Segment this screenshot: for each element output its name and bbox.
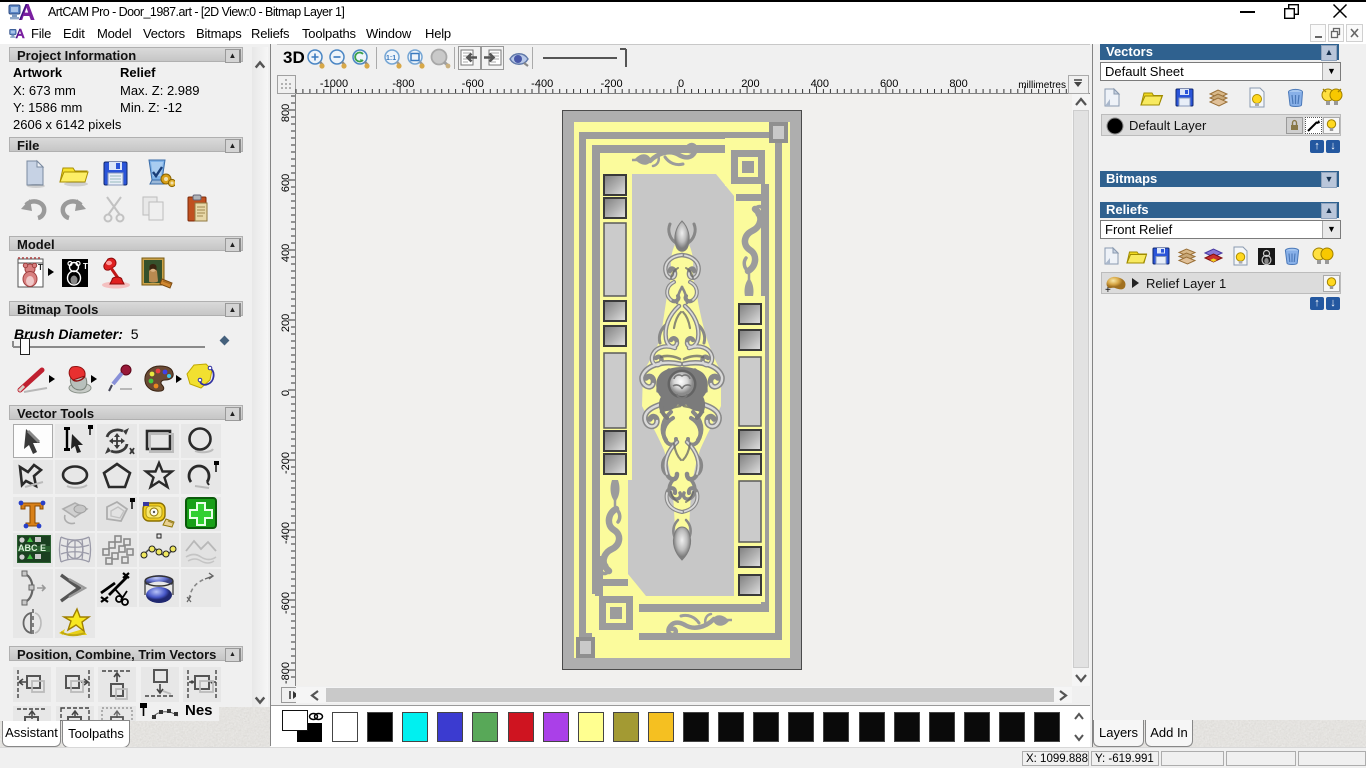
svg-text:-600: -600 — [280, 592, 292, 614]
svg-text:-600: -600 — [462, 78, 484, 90]
svg-text:+: + — [1105, 285, 1111, 294]
svg-text:600: 600 — [280, 174, 292, 192]
svg-text:800: 800 — [949, 78, 967, 90]
svg-text:T: T — [83, 262, 88, 271]
svg-text:-800: -800 — [280, 662, 292, 684]
svg-text:200: 200 — [280, 314, 292, 332]
svg-text:-800: -800 — [392, 78, 414, 90]
svg-text:T: T — [38, 263, 43, 272]
svg-text:200: 200 — [741, 78, 759, 90]
svg-text:800: 800 — [280, 104, 292, 122]
svg-text:600: 600 — [880, 78, 898, 90]
svg-text:-1000: -1000 — [320, 78, 348, 90]
svg-text:1:1: 1:1 — [386, 55, 396, 62]
svg-text:-200: -200 — [601, 78, 623, 90]
svg-text:400: 400 — [811, 78, 829, 90]
svg-text:400: 400 — [280, 244, 292, 262]
svg-text:0: 0 — [280, 390, 292, 396]
svg-text:-200: -200 — [280, 452, 292, 474]
svg-text:-400: -400 — [280, 522, 292, 544]
svg-text:millimetres: millimetres — [1018, 80, 1066, 91]
svg-text:ABC E: ABC E — [18, 543, 46, 553]
svg-text:0: 0 — [678, 78, 684, 90]
svg-text:-400: -400 — [531, 78, 553, 90]
